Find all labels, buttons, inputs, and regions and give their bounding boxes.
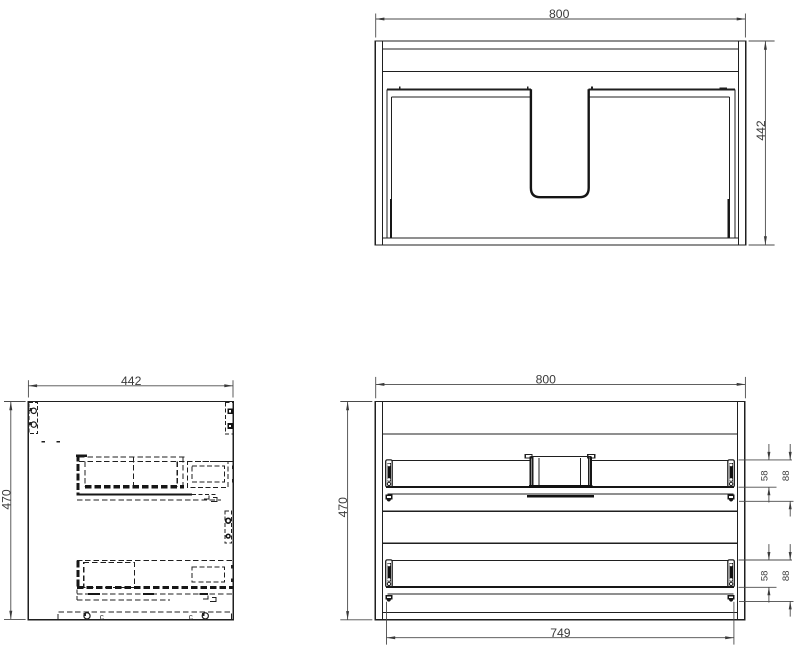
svg-text:470: 470: [0, 489, 13, 510]
svg-text:800: 800: [549, 7, 570, 21]
svg-text:58: 58: [760, 471, 771, 482]
svg-text:800: 800: [536, 372, 557, 386]
svg-text:442: 442: [754, 120, 768, 141]
svg-text:58: 58: [760, 571, 771, 582]
svg-text:749: 749: [550, 626, 571, 640]
svg-text:442: 442: [121, 374, 142, 388]
svg-text:c: c: [100, 611, 105, 621]
svg-text:88: 88: [781, 471, 792, 482]
svg-text:88: 88: [781, 571, 792, 582]
svg-text:c: c: [189, 611, 194, 621]
svg-text:470: 470: [336, 497, 350, 518]
